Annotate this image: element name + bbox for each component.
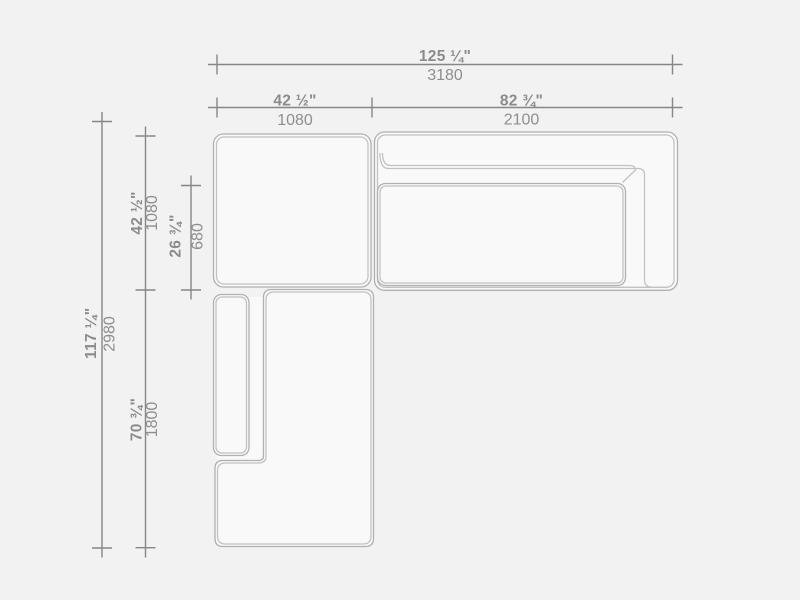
svg-text:680: 680	[190, 223, 207, 250]
svg-text:1800: 1800	[144, 402, 161, 438]
svg-text:42 ½": 42 ½"	[273, 93, 316, 110]
svg-text:26 ¾": 26 ¾"	[167, 214, 184, 257]
svg-text:2980: 2980	[101, 316, 118, 352]
svg-text:82 ¾": 82 ¾"	[500, 93, 543, 110]
svg-text:1080: 1080	[277, 112, 313, 129]
svg-text:3180: 3180	[427, 67, 463, 84]
svg-text:2100: 2100	[504, 111, 540, 128]
svg-text:70 ¾": 70 ¾"	[129, 398, 146, 441]
svg-text:125 ¼": 125 ¼"	[419, 48, 471, 65]
svg-text:1080: 1080	[144, 195, 161, 231]
svg-text:117 ¼": 117 ¼"	[83, 308, 100, 359]
